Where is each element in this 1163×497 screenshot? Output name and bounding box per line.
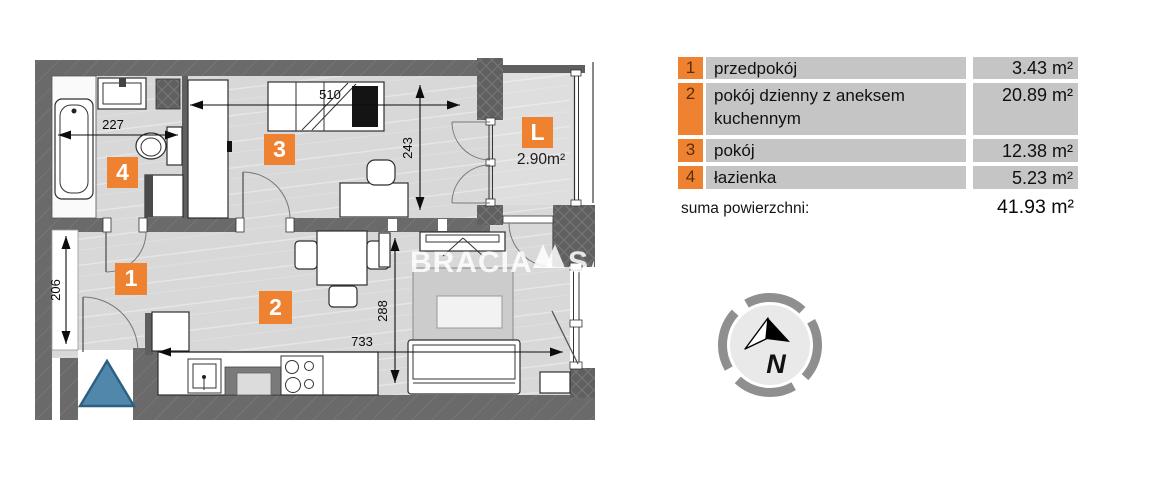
svg-text:510: 510 — [319, 87, 341, 102]
legend-table: 1 przedpokój 3.43 m² 2 pokój dzienny z a… — [678, 57, 1078, 219]
wardrobe — [188, 80, 228, 218]
cabinet-inset — [225, 367, 281, 395]
svg-text:SA: SA — [568, 246, 612, 279]
sink-icon — [98, 78, 146, 109]
kitchen-sink-icon — [188, 359, 221, 393]
legend-total-row: suma powierzchni: 41.93 m² — [678, 196, 1078, 219]
radiator — [379, 233, 390, 267]
total-label: suma powierzchni: — [678, 200, 809, 218]
fridge — [152, 312, 189, 351]
legend-room-area: 5.23 m² — [973, 166, 1078, 189]
rug — [413, 268, 513, 344]
legend-room-area: 3.43 m² — [973, 57, 1078, 79]
room-badge-3: 3 — [264, 134, 295, 165]
legend-row-number: 4 — [678, 166, 703, 189]
room-badge-loggia: L — [522, 117, 553, 148]
north-label: N — [766, 349, 786, 379]
legend-row: 3 pokój 12.38 m² — [678, 139, 1078, 162]
legend-row-number: 1 — [678, 57, 703, 79]
legend-row: 2 pokój dzienny z aneksem kuchennym 20.8… — [678, 83, 1078, 135]
svg-text:L: L — [530, 119, 544, 145]
svg-text:733: 733 — [351, 334, 373, 349]
sofa-icon — [408, 340, 520, 394]
loggia-area-label: 2.90m² — [517, 151, 565, 168]
svg-text:227: 227 — [102, 117, 124, 132]
svg-text:4: 4 — [116, 159, 129, 185]
legend-room-name: pokój dzienny z aneksem kuchennym — [706, 83, 966, 135]
dimension-hall-height: 206 — [48, 230, 78, 350]
washing-machine-icon — [145, 175, 183, 217]
svg-text:BRACIA: BRACIA — [410, 246, 533, 279]
watermark: BRACIA SA — [410, 244, 612, 279]
room-badge-2: 2 — [259, 291, 292, 324]
duct-shaft — [156, 79, 180, 109]
legend-row: 1 przedpokój 3.43 m² — [678, 57, 1078, 79]
svg-text:206: 206 — [48, 279, 63, 301]
legend-room-name: łazienka — [706, 166, 966, 189]
legend-room-area: 12.38 m² — [973, 139, 1078, 162]
room-badge-1: 1 — [115, 263, 147, 295]
room-badge-4: 4 — [107, 157, 138, 188]
total-value: 41.93 m² — [809, 196, 1078, 219]
legend-row-number: 2 — [678, 83, 703, 135]
side-table — [540, 372, 570, 393]
svg-text:243: 243 — [400, 137, 415, 159]
legend-row: 4 łazienka 5.23 m² — [678, 166, 1078, 189]
floor-plan: 227 510 243 206 288 733 4 3 — [0, 0, 620, 497]
compass: N — [712, 287, 830, 405]
desk — [340, 183, 408, 217]
legend-row-number: 3 — [678, 139, 703, 162]
legend-room-area: 20.89 m² — [973, 83, 1078, 135]
svg-text:3: 3 — [273, 136, 286, 162]
legend-room-name: pokój — [706, 139, 966, 162]
desk-chair — [367, 160, 395, 185]
svg-text:288: 288 — [375, 300, 390, 322]
svg-text:2: 2 — [269, 294, 282, 320]
socket-mark — [227, 141, 232, 152]
legend-room-name: przedpokój — [706, 57, 966, 79]
bathtub-icon — [55, 99, 93, 199]
svg-text:1: 1 — [125, 265, 138, 291]
